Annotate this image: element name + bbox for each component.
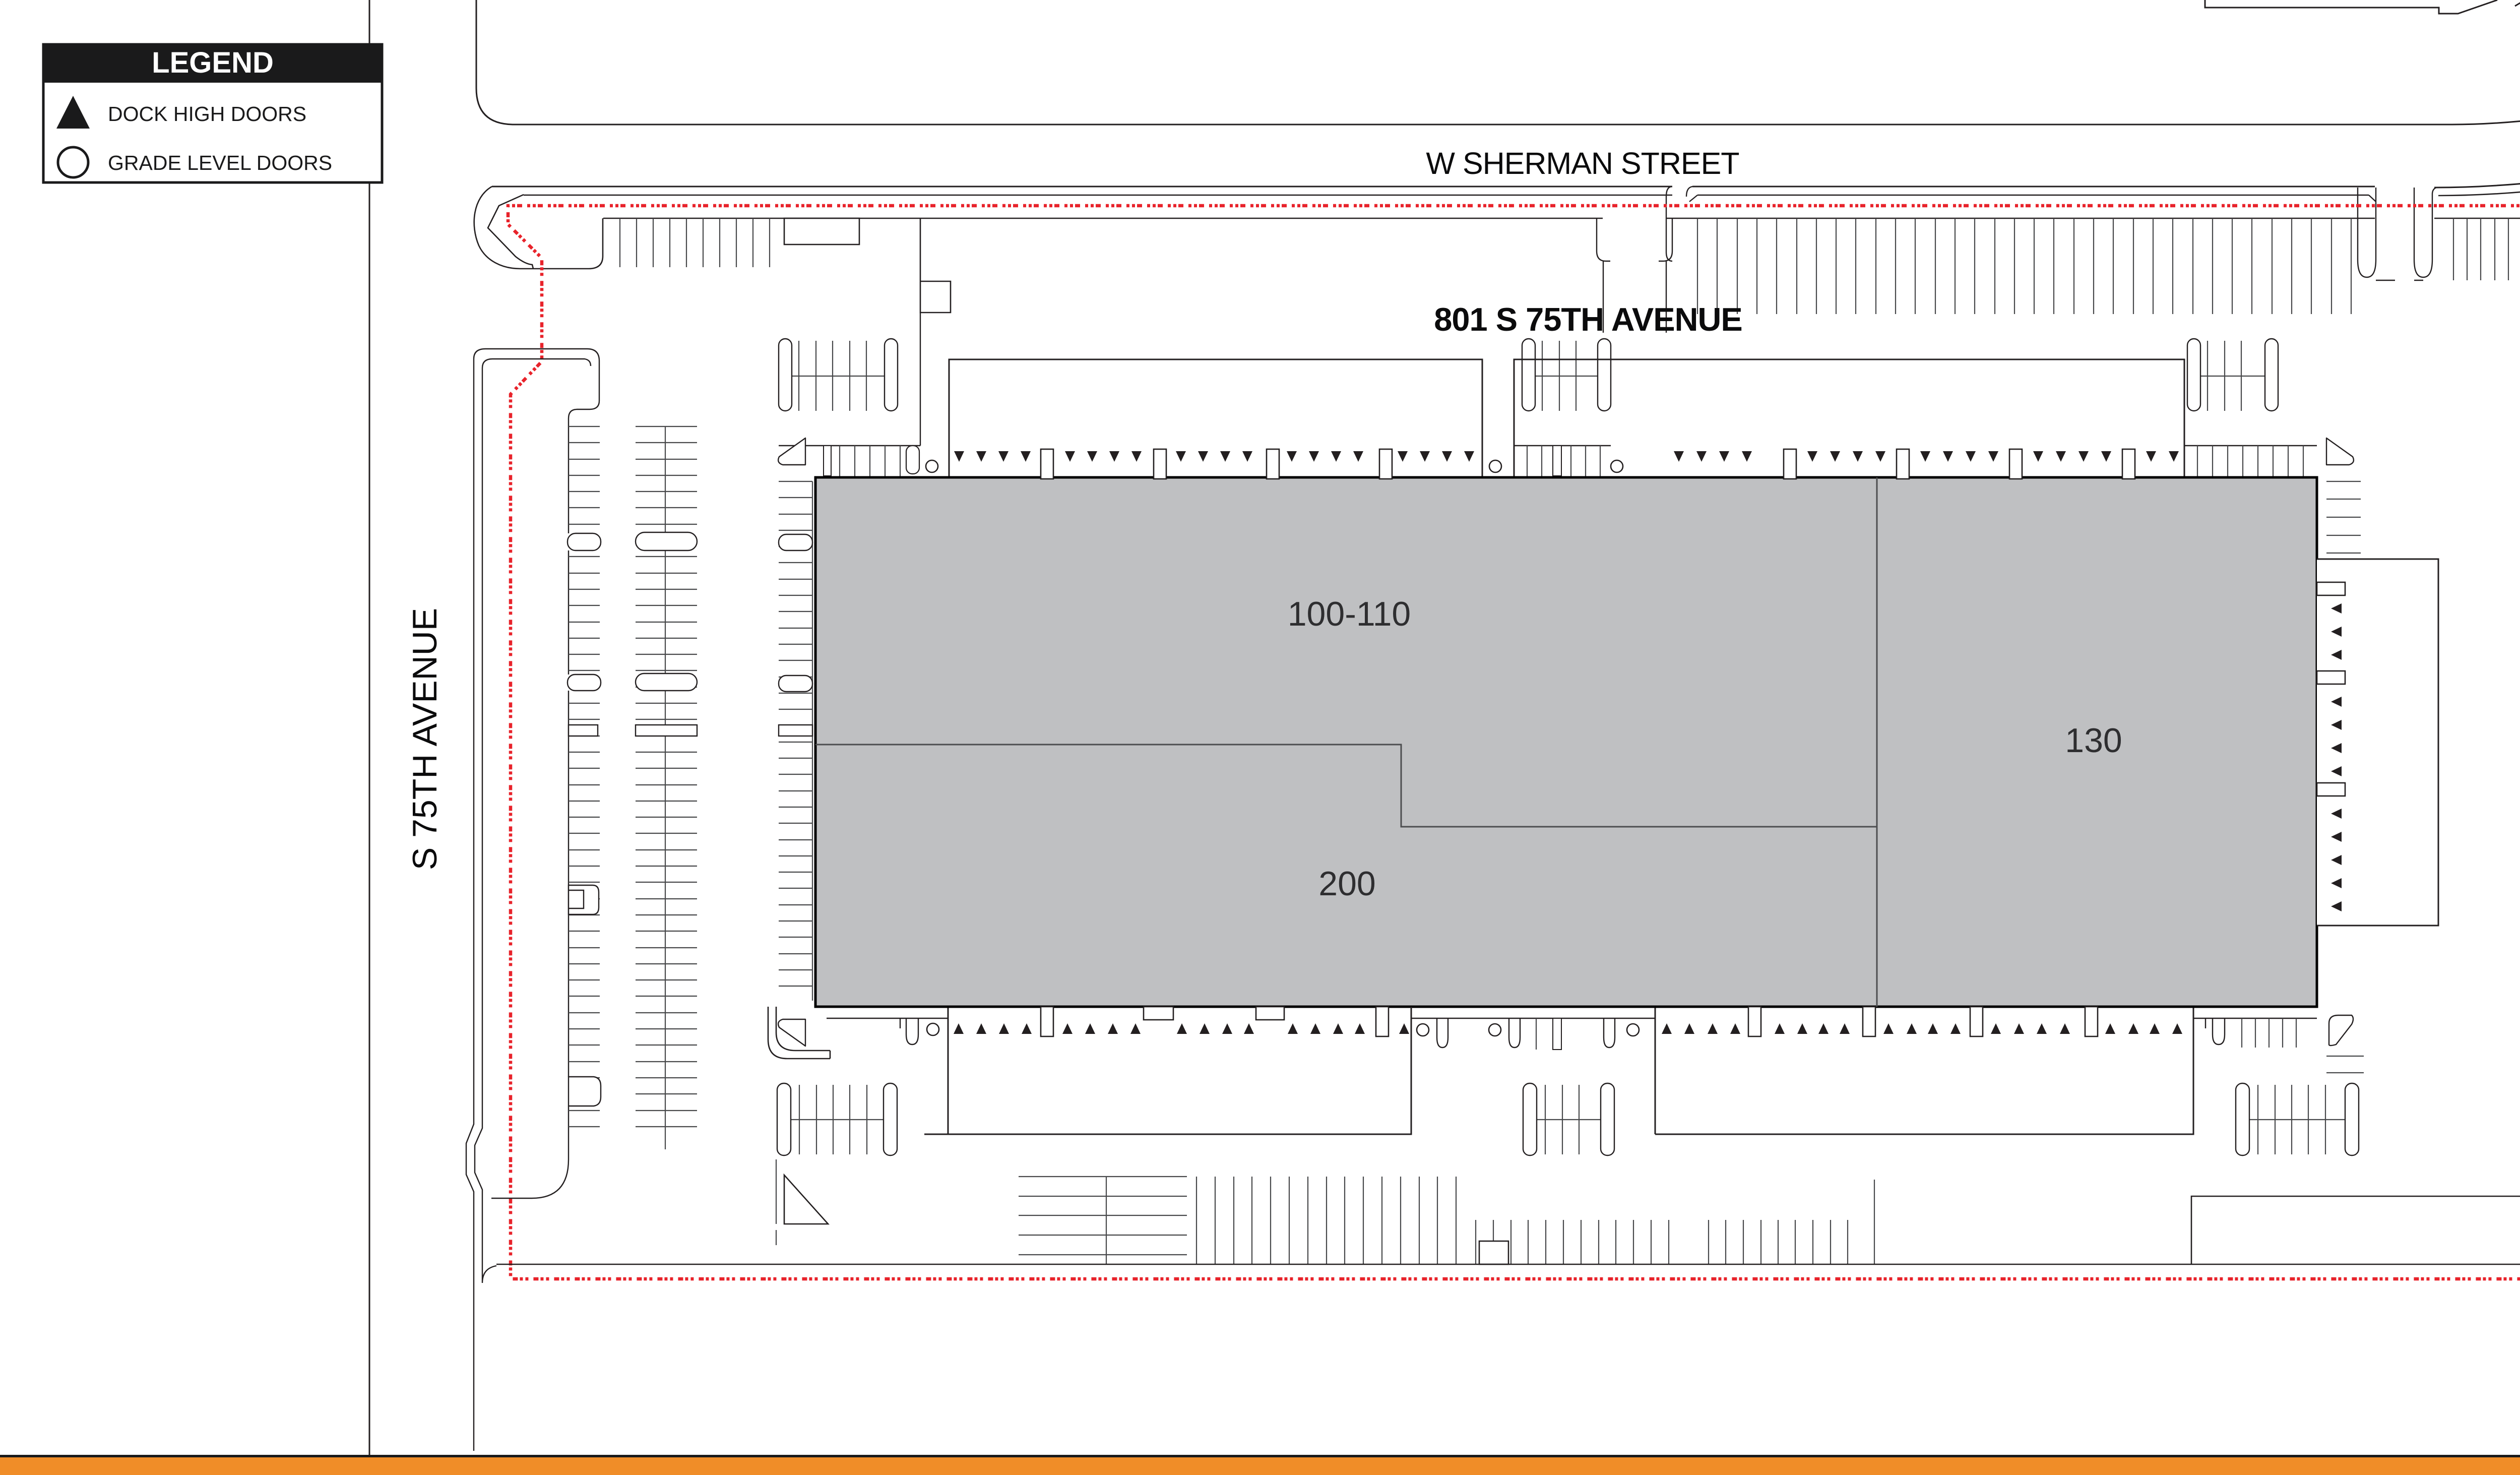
svg-text:100-110: 100-110 [1288,595,1411,633]
svg-text:W SHERMAN STREET: W SHERMAN STREET [1426,146,1739,180]
svg-text:LEGEND: LEGEND [152,46,274,79]
svg-text:GRADE LEVEL DOORS: GRADE LEVEL DOORS [108,151,332,174]
svg-text:801 S 75TH AVENUE: 801 S 75TH AVENUE [1434,301,1742,338]
svg-text:130: 130 [2065,721,2122,760]
svg-text:DOCK HIGH DOORS: DOCK HIGH DOORS [108,102,306,126]
svg-text:200: 200 [1318,865,1375,903]
svg-text:S 75TH AVENUE: S 75TH AVENUE [406,608,444,870]
